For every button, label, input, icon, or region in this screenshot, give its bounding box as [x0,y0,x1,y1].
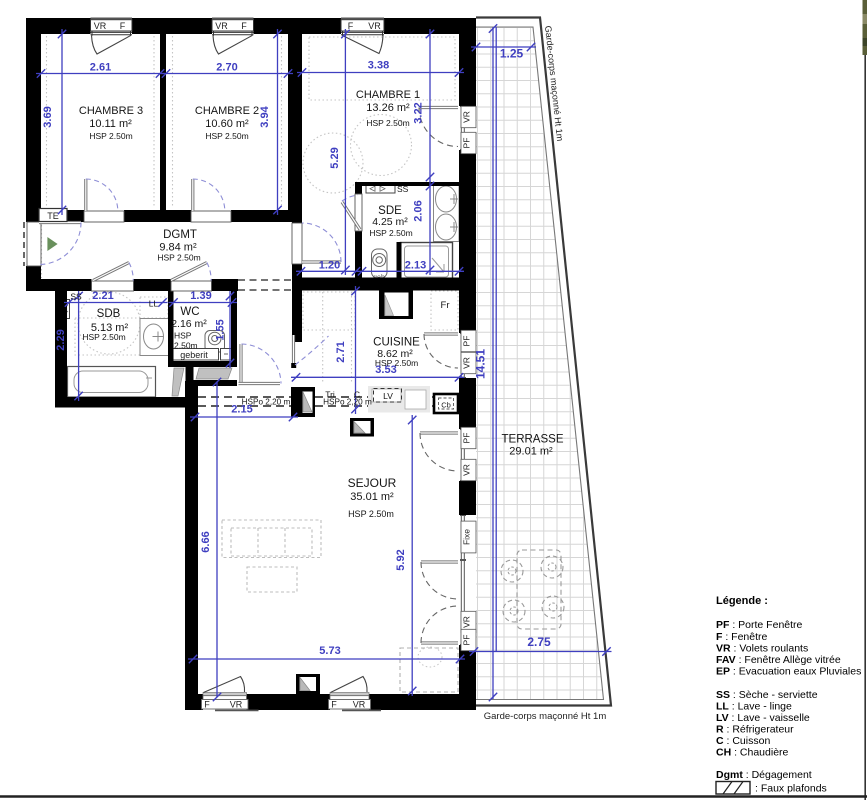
svg-text:HSP 2.50m: HSP 2.50m [205,131,248,141]
svg-text:4.25 m²: 4.25 m² [372,216,408,228]
svg-text:2.70: 2.70 [216,62,237,74]
svg-text:3.22: 3.22 [413,102,425,123]
svg-text:LL: LL [149,299,159,309]
svg-text:Dgmt : Dégagement: Dgmt : Dégagement [716,769,812,781]
svg-text:TE: TE [47,211,59,221]
svg-text:VR: VR [462,357,472,369]
svg-text:SS : Sèche - serviette: SS : Sèche - serviette [716,689,818,701]
svg-text:F: F [348,21,354,31]
svg-text:HSPo 2,20 m: HSPo 2,20 m [323,398,372,407]
svg-text:F: F [120,21,126,31]
svg-text:FAV : Fenêtre Allège vitrée: FAV : Fenêtre Allège vitrée [716,654,841,666]
svg-text:: Faux plafonds: : Faux plafonds [755,783,827,795]
svg-text:VR: VR [94,21,107,31]
svg-text:CHAMBRE 2: CHAMBRE 2 [195,105,259,117]
svg-text:1.25: 1.25 [500,47,524,61]
svg-text:VR: VR [462,464,472,476]
svg-text:CHAMBRE 3: CHAMBRE 3 [79,105,143,117]
svg-text:Fixe: Fixe [462,529,472,545]
svg-text:HSP 2.50m: HSP 2.50m [366,118,409,128]
svg-text:2.13: 2.13 [405,260,426,272]
svg-text:HSP 2.50m: HSP 2.50m [89,131,132,141]
svg-text:2.71: 2.71 [335,341,347,362]
svg-text:C : Cuisson: C : Cuisson [716,735,770,747]
svg-text:VR: VR [462,616,472,628]
svg-text:HSPo 2,20 m: HSPo 2,20 m [242,398,291,407]
svg-text:10.60 m²: 10.60 m² [205,118,249,130]
svg-text:2.50m: 2.50m [174,341,198,351]
svg-text:3.38: 3.38 [368,60,389,72]
svg-text:3.94: 3.94 [259,105,271,127]
svg-text:PF: PF [462,336,472,347]
svg-text:2.16 m²: 2.16 m² [171,318,207,330]
svg-text:VR: VR [230,700,243,710]
svg-text:SS: SS [70,292,82,302]
svg-text:13.26 m²: 13.26 m² [366,102,410,114]
svg-text:3.69: 3.69 [42,106,54,127]
svg-text:2.06: 2.06 [413,200,425,221]
svg-text:R : Réfrigerateur: R : Réfrigerateur [716,724,794,736]
svg-text:WC: WC [180,306,199,318]
svg-text:VR: VR [368,21,381,31]
svg-text:HSP 2.50m: HSP 2.50m [157,253,200,263]
svg-text:2.29: 2.29 [55,329,67,350]
svg-text:LV : Lave - vaisselle: LV : Lave - vaisselle [716,712,810,724]
svg-text:LL : Lave - linge: LL : Lave - linge [716,701,792,713]
svg-text:PF: PF [462,635,472,646]
svg-text:2.75: 2.75 [527,635,551,649]
svg-text:29.01 m²: 29.01 m² [509,446,553,458]
svg-text:SDB: SDB [97,308,121,320]
svg-text:PF: PF [462,433,472,444]
svg-text:1.55: 1.55 [215,319,227,340]
svg-text:F : Fenêtre: F : Fenêtre [716,631,768,643]
svg-text:HSP 2.50m: HSP 2.50m [348,509,394,519]
svg-text:SS: SS [397,184,409,194]
svg-text:CUISINE: CUISINE [373,337,420,349]
svg-text:EP : Evacuation eaux Pluviales: EP : Evacuation eaux Pluviales [716,666,861,678]
svg-text:CHAMBRE 1: CHAMBRE 1 [356,89,420,101]
svg-text:HSP: HSP [174,331,192,341]
svg-text:LV: LV [383,391,393,401]
svg-text:10.11 m²: 10.11 m² [89,118,132,130]
svg-text:Fr: Fr [441,300,450,311]
svg-text:F: F [204,700,210,710]
svg-text:PF : Porte Fenêtre: PF : Porte Fenêtre [716,619,803,631]
svg-text:2.61: 2.61 [90,62,111,74]
svg-text:VR : Volets roulants: VR : Volets roulants [716,643,808,655]
svg-text:35.01 m²: 35.01 m² [350,491,394,503]
svg-text:6.66: 6.66 [200,531,212,552]
svg-text:HSP 2.50m: HSP 2.50m [82,332,125,342]
svg-text:Cb: Cb [441,401,451,410]
svg-text:VR: VR [215,21,228,31]
svg-text:DGMT: DGMT [163,229,197,241]
svg-text:PF: PF [462,138,472,149]
svg-text:HSP 2.50m: HSP 2.50m [375,358,418,368]
svg-text:Garde-corps maçonné Ht 1m: Garde-corps maçonné Ht 1m [484,711,607,722]
svg-text:TERRASSE: TERRASSE [502,434,564,446]
svg-text:HSP 2.50m: HSP 2.50m [369,228,412,238]
svg-text:5.92: 5.92 [395,549,407,570]
svg-text:F: F [241,21,247,31]
svg-text:1.20: 1.20 [319,260,340,272]
svg-text:2.21: 2.21 [92,290,113,302]
svg-text:geberit: geberit [180,350,208,360]
svg-text:VR: VR [462,111,472,123]
svg-text:1.39: 1.39 [190,290,211,302]
svg-text:14.51: 14.51 [474,349,488,379]
svg-text:5.29: 5.29 [329,147,341,168]
svg-text:5.73: 5.73 [319,645,340,657]
svg-text:F: F [331,700,337,710]
svg-text:Légende :: Légende : [716,595,768,607]
svg-text:SEJOUR: SEJOUR [348,476,397,490]
svg-text:VR: VR [353,700,366,710]
svg-text:CH : Chaudière: CH : Chaudière [716,747,789,759]
